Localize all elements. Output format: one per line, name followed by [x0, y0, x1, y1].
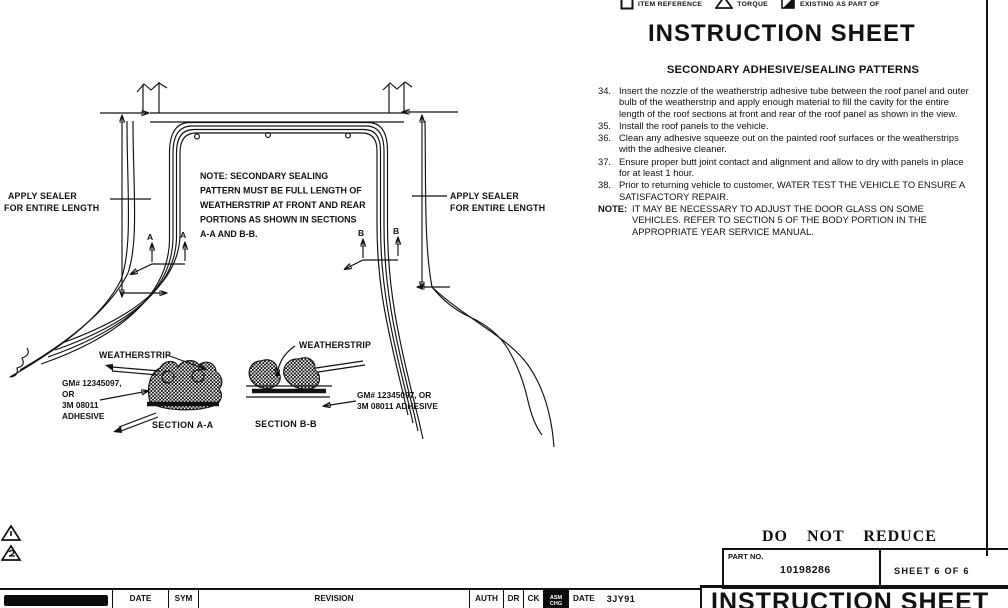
date-header-cell: DATE: [113, 590, 169, 608]
revision-triangle-icons: [1, 524, 25, 566]
page-title: INSTRUCTION SHEET: [648, 20, 916, 48]
item-text: Install the roof panels to the vehicle.: [619, 120, 973, 131]
section-a-label: SECTION A-A: [152, 420, 214, 430]
asm-chg-header-cell: ASM CHG: [544, 590, 569, 608]
adhesive-label-b: GM# 12345097, OR: [357, 390, 431, 400]
sheet-number-cell: SHEET 6 OF 6: [881, 550, 1008, 587]
dr-header-cell: DR: [504, 590, 524, 608]
diagram-note: NOTE: SECONDARY SEALING PATTERN MUST BE …: [200, 171, 366, 239]
revision-triangle-icon: [2, 546, 20, 560]
item-text: Prior to returning vehicle to customer, …: [619, 179, 973, 202]
stamp-cell: [0, 590, 113, 608]
weatherstrip-label-a: WEATHERSTRIP: [99, 350, 171, 360]
illegible-stamp: [4, 595, 108, 606]
item-number: 36.: [598, 132, 619, 155]
torque-triangle-icon: [715, 0, 733, 10]
instruction-note: NOTE: IT MAY BE NECESSARY TO ADJUST THE …: [598, 203, 988, 237]
section-heading: SECONDARY ADHESIVE/SEALING PATTERNS: [598, 64, 988, 76]
section-cut-b: B B: [345, 226, 399, 269]
sheet-border-line: [986, 0, 988, 556]
instructions-column: SECONDARY ADHESIVE/SEALING PATTERNS 34. …: [598, 64, 988, 238]
part-number-cell: PART NO. 10198286: [724, 550, 881, 587]
svg-text:3M 08011 ADHESIVE: 3M 08011 ADHESIVE: [357, 401, 438, 411]
section-a-a-view: WEATHERSTRIP GM# 12345097, OR 3M 08011 A…: [62, 350, 222, 433]
instruction-sheet-page: ITEM REFERENCE TORQUE EXISTING AS PART O…: [0, 0, 1008, 608]
sym-header-cell: SYM: [169, 590, 199, 608]
do-not-reduce-stamp: DO NOT REDUCE: [762, 528, 937, 546]
item-text: Ensure proper butt joint contact and ali…: [619, 156, 973, 179]
svg-text:OR: OR: [62, 389, 74, 399]
svg-text:B: B: [358, 228, 364, 238]
note-label: NOTE:: [598, 203, 632, 237]
sheet-number: SHEET 6 OF 6: [894, 566, 970, 576]
legend-item-reference: ITEM REFERENCE: [620, 0, 702, 10]
apply-sealer-right-line2: FOR ENTIRE LENGTH: [450, 203, 545, 213]
ck-header-cell: CK: [524, 590, 544, 608]
instruction-item: 38. Prior to returning vehicle to custom…: [598, 179, 988, 202]
revision-table: DATE SYM REVISION AUTH DR CK ASM CHG DAT…: [0, 588, 702, 608]
note-text: IT MAY BE NECESSARY TO ADJUST THE DOOR G…: [632, 203, 940, 237]
item-number: 37.: [598, 156, 619, 179]
item-reference-box-icon: [620, 0, 634, 10]
instruction-item: 36. Clean any adhesive squeeze out on th…: [598, 132, 988, 155]
legend-label: TORQUE: [737, 1, 768, 10]
date-label: DATE: [573, 594, 595, 603]
item-text: Clean any adhesive squeeze out on the pa…: [619, 132, 973, 155]
svg-text:B: B: [393, 226, 399, 236]
item-number: 35.: [598, 120, 619, 131]
svg-text:A: A: [180, 230, 186, 240]
apply-sealer-left-line1: APPLY SEALER: [8, 191, 77, 201]
svg-text:A: A: [147, 232, 153, 242]
apply-sealer-left-line2: FOR ENTIRE LENGTH: [4, 203, 99, 213]
part-number-box: PART NO. 10198286 SHEET 6 OF 6: [722, 548, 1008, 589]
svg-text:ADHESIVE: ADHESIVE: [62, 411, 105, 421]
title-block: INSTRUCTION SHEET: [700, 585, 1008, 608]
adhesive-label-a: GM# 12345097,: [62, 378, 122, 388]
revision-header-cell: REVISION: [199, 590, 470, 608]
instruction-item: 37. Ensure proper butt joint contact and…: [598, 156, 988, 179]
footer-title: INSTRUCTION SHEET: [711, 588, 989, 608]
date-value-cell: DATE 3JY91: [569, 590, 702, 608]
legend-label: EXISTING AS PART OF: [800, 1, 880, 10]
body-contours: [10, 121, 554, 447]
instruction-item: 35. Install the roof panels to the vehic…: [598, 120, 988, 131]
frame-diagram: APPLY SEALER FOR ENTIRE LENGTH APPLY SEA…: [0, 75, 575, 447]
svg-text:A-A AND B-B.: A-A AND B-B.: [200, 229, 258, 239]
roof-rail: [150, 113, 406, 122]
svg-text:NOTE: SECONDARY SEALING: NOTE: SECONDARY SEALING: [200, 171, 328, 181]
part-no-label: PART NO.: [728, 552, 763, 561]
pillar-tops: [137, 82, 412, 113]
svg-text:WEATHERSTRIP AT FRONT AND REAR: WEATHERSTRIP AT FRONT AND REAR: [200, 200, 366, 210]
date-value: 3JY91: [607, 594, 636, 604]
svg-text:PORTIONS AS SHOWN IN SECTIONS: PORTIONS AS SHOWN IN SECTIONS: [200, 215, 357, 225]
apply-sealer-right-line1: APPLY SEALER: [450, 191, 519, 201]
part-no-value: 10198286: [780, 564, 831, 576]
svg-text:PATTERN MUST BE FULL LENGTH OF: PATTERN MUST BE FULL LENGTH OF: [200, 186, 362, 196]
instruction-item: 34. Insert the nozzle of the weatherstri…: [598, 85, 988, 119]
item-text: Insert the nozzle of the weatherstrip ad…: [619, 85, 973, 119]
item-number: 34.: [598, 85, 619, 119]
existing-as-part-of-icon: [781, 0, 796, 10]
section-b-label: SECTION B-B: [255, 419, 317, 429]
legend-label: ITEM REFERENCE: [638, 1, 702, 10]
legend-torque: TORQUE: [715, 0, 768, 10]
auth-header-cell: AUTH: [470, 590, 504, 608]
svg-text:3M 08011: 3M 08011: [62, 400, 99, 410]
symbol-legend: ITEM REFERENCE TORQUE EXISTING AS PART O…: [620, 0, 880, 14]
item-number: 38.: [598, 179, 619, 202]
legend-existing: EXISTING AS PART OF: [781, 0, 880, 10]
weatherstrip-label-b: WEATHERSTRIP: [299, 340, 371, 350]
